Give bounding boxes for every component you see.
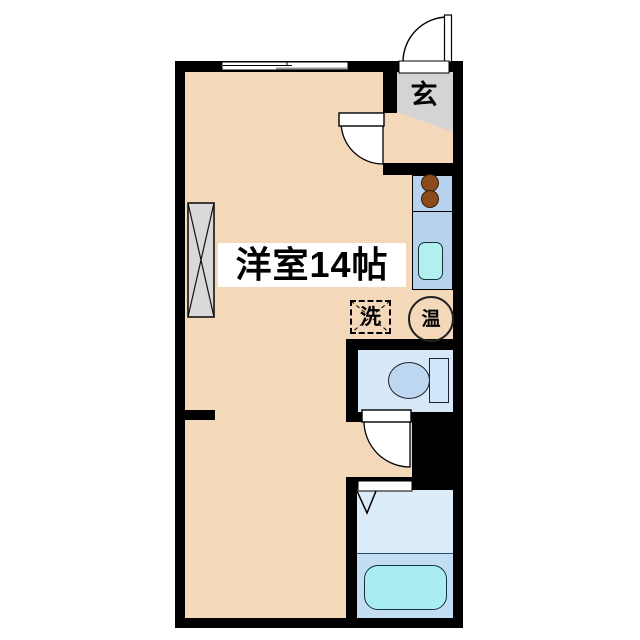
floor-plan: 洋室14帖 玄 洗 温 xyxy=(0,0,640,640)
toilet-bowl xyxy=(388,362,430,399)
washer-label: 洗 xyxy=(350,300,391,334)
entrance-door-leaf xyxy=(445,15,452,62)
kitchen-sink xyxy=(418,242,443,280)
room-label: 洋室14帖 xyxy=(218,243,406,287)
genkan-doorway-floor xyxy=(383,113,397,163)
main-room-floor-ne xyxy=(346,72,383,339)
toilet-tank xyxy=(429,358,449,403)
water-heater-circle: 温 xyxy=(408,296,454,342)
left-wall-stub xyxy=(175,410,215,420)
counter-divider xyxy=(412,211,453,212)
bathroom-floor xyxy=(357,490,453,553)
heater-label: 温 xyxy=(421,310,440,329)
main-room-floor xyxy=(185,72,346,618)
stove-burner-bottom xyxy=(421,190,439,208)
genkan-label: 玄 xyxy=(408,79,440,111)
entrance-door-arc xyxy=(403,17,448,62)
hallway-floor xyxy=(346,422,412,477)
bathtub xyxy=(364,565,447,610)
